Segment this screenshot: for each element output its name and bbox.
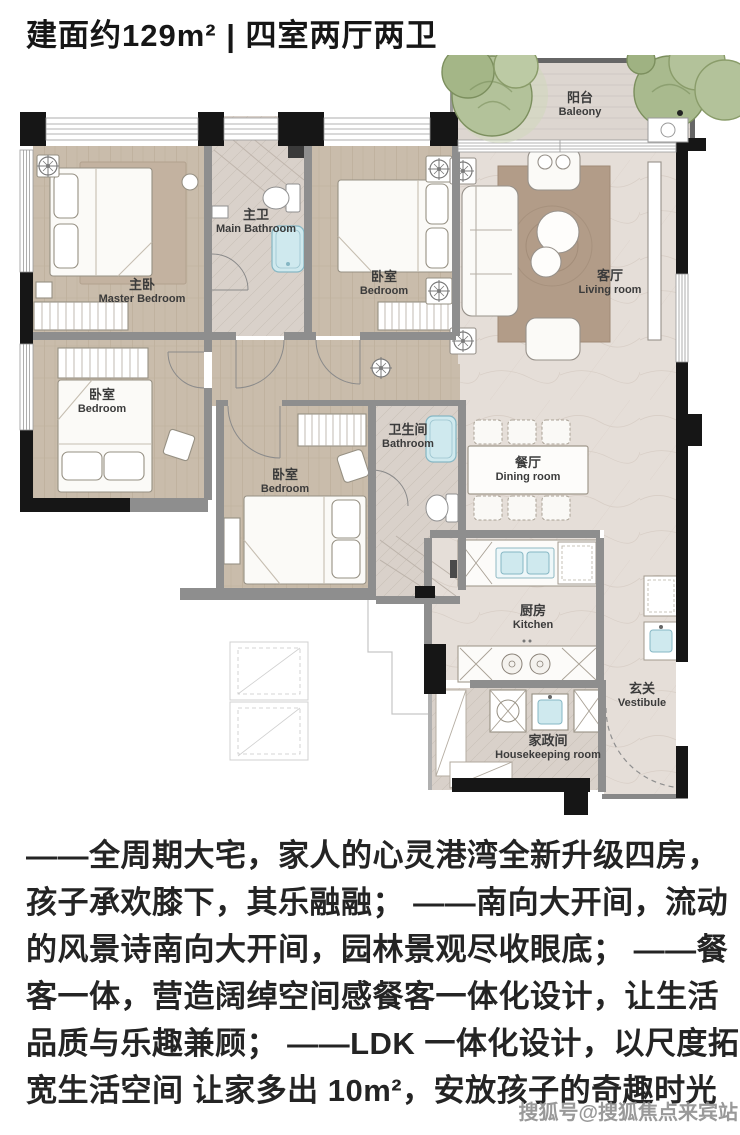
room-label-kitchen: 厨房 Kitchen xyxy=(513,604,553,632)
room-label-dining-room: 餐厅 Dining room xyxy=(496,456,561,484)
room-label-master-bedroom: 主卧 Master Bedroom xyxy=(99,278,186,306)
room-label-bathroom: 卫生间 Bathroom xyxy=(382,423,434,451)
description-line: ——全周期大宅，家人的心灵港湾全新升级四房， xyxy=(26,832,726,879)
description-line: 孩子承欢膝下，其乐融融； ——南向大开间，流动 xyxy=(26,879,726,926)
room-label-bedroom-west: 卧室 Bedroom xyxy=(78,388,126,416)
description-line: 客一体，营造阔绰空间感餐客一体化设计，让生活 xyxy=(26,973,726,1020)
page: 建面约129m² | 四室两厅两卫 xyxy=(0,0,740,1135)
room-label-balcony: 阳台 Baleony xyxy=(559,91,602,119)
public-area-outline xyxy=(230,600,430,760)
page-title: 建面约129m² | 四室两厅两卫 xyxy=(26,10,438,55)
room-label-housekeeping-room: 家政间 Housekeeping room xyxy=(495,734,601,762)
description-line: 的风景诗南向大开间，园林景观尽收眼底； ——餐 xyxy=(26,926,726,973)
room-label-main-bathroom: 主卫 Main Bathroom xyxy=(216,208,296,236)
room-label-living-room: 客厅 Living room xyxy=(579,269,642,297)
room-label-bedroom-middle: 卧室 Bedroom xyxy=(261,468,309,496)
description-text: ——全周期大宅，家人的心灵港湾全新升级四房， 孩子承欢膝下，其乐融融； ——南向… xyxy=(26,832,726,1114)
room-label-vestibule: 玄关 Vestibule xyxy=(618,682,666,710)
watermark-text: 搜狐号@搜狐焦点来宾站 xyxy=(518,1096,738,1125)
room-label-bedroom-north: 卧室 Bedroom xyxy=(360,270,408,298)
description-line: 品质与乐趣兼顾； ——LDK 一体化设计，以尺度拓 xyxy=(26,1020,726,1067)
